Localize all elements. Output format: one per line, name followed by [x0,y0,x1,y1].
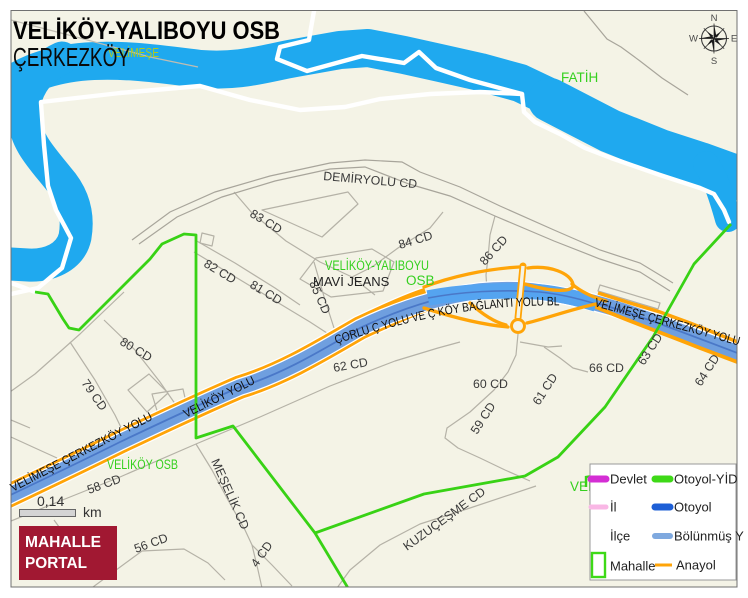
svg-text:N: N [711,13,718,24]
svg-text:İl: İl [610,500,617,515]
svg-text:Anayol: Anayol [676,558,716,573]
svg-text:km: km [83,504,102,520]
svg-text:Devlet: Devlet [610,472,647,487]
svg-text:VELİKÖY OSB: VELİKÖY OSB [107,457,178,472]
svg-text:S: S [711,56,717,67]
svg-text:Otoyol: Otoyol [674,500,712,515]
svg-text:Bölünmüş Y: Bölünmüş Y [674,529,744,544]
svg-text:Mahalle: Mahalle [610,559,656,574]
svg-text:PORTAL: PORTAL [25,555,87,572]
svg-text:VELİKÖY-YALIBOYU: VELİKÖY-YALIBOYU [325,258,429,273]
svg-text:İlçe: İlçe [610,529,630,544]
svg-text:66 CD: 66 CD [589,361,624,375]
svg-text:MAHALLE: MAHALLE [25,534,101,551]
svg-text:OSB: OSB [406,273,435,288]
svg-text:W: W [689,34,698,45]
svg-text:ÇERKEZKÖY: ÇERKEZKÖY [13,42,130,72]
svg-text:VELİKÖY-YALIBOYU OSB: VELİKÖY-YALIBOYU OSB [13,16,280,45]
svg-text:FATİH: FATİH [561,70,598,85]
svg-text:MAVİ JEANS: MAVİ JEANS [313,274,390,289]
svg-text:60 CD: 60 CD [473,377,508,391]
svg-text:0,14: 0,14 [37,493,64,509]
svg-text:Otoyol-YİD: Otoyol-YİD [674,472,738,487]
svg-text:E: E [731,34,737,45]
